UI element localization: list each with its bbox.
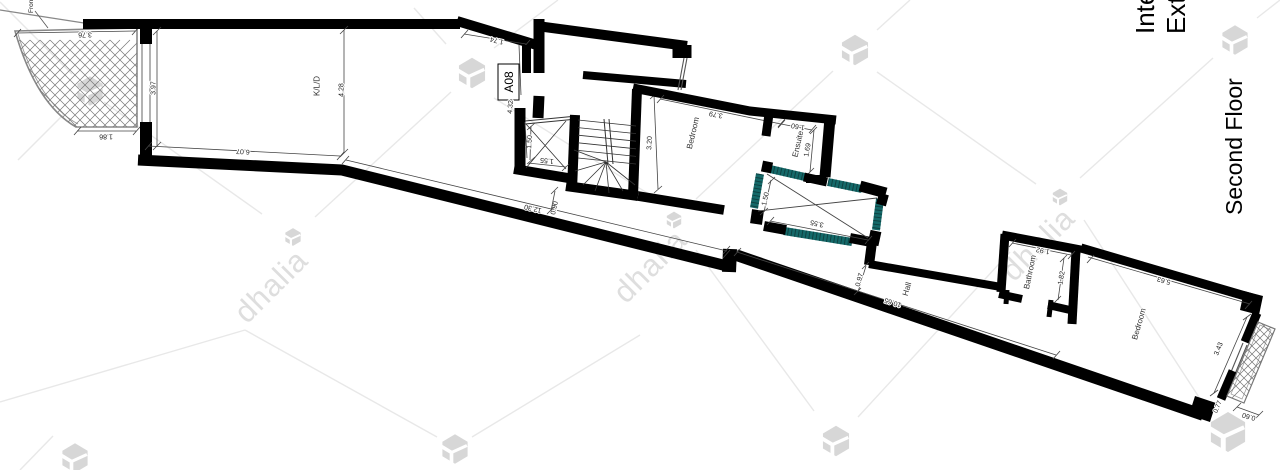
svg-text:A08: A08: [502, 71, 516, 93]
svg-text:Second Floor: Second Floor: [1221, 78, 1247, 215]
svg-text:1.55: 1.55: [540, 156, 554, 164]
svg-text:External Area: 10m²: External Area: 10m²: [1161, 0, 1191, 34]
svg-text:Front terrace: Front terrace: [28, 0, 35, 13]
svg-text:6.07: 6.07: [236, 147, 250, 155]
svg-text:4.28: 4.28: [339, 83, 346, 97]
svg-text:1.50: 1.50: [526, 135, 534, 149]
svg-text:3.76: 3.76: [78, 31, 92, 38]
svg-text:1.86: 1.86: [99, 133, 113, 140]
svg-text:3.97: 3.97: [151, 81, 158, 95]
svg-text:Internal Area: 96m²: Internal Area: 96m²: [1130, 0, 1160, 34]
svg-text:3.20: 3.20: [646, 136, 653, 150]
svg-text:K/L/D: K/L/D: [313, 76, 322, 96]
svg-text:4.32: 4.32: [507, 100, 515, 114]
